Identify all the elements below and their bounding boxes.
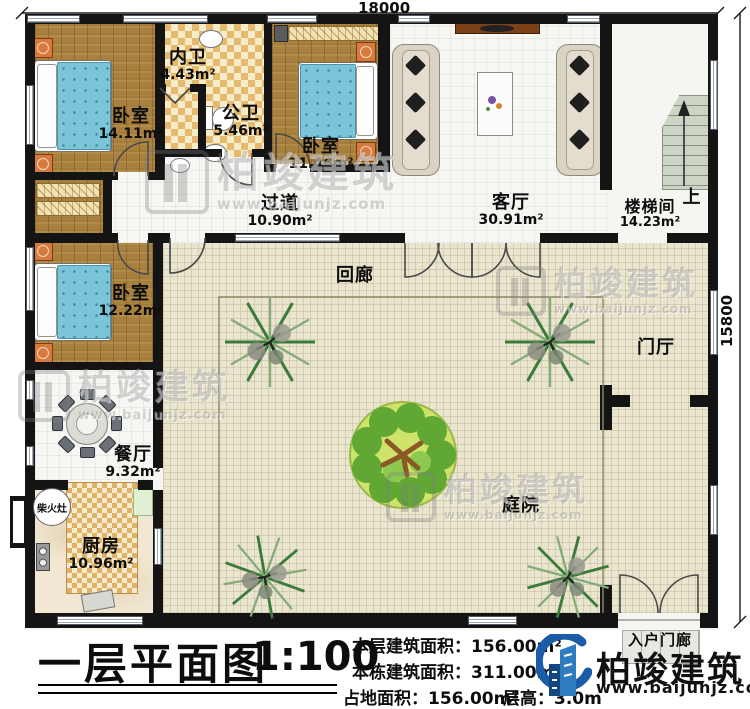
wall	[25, 362, 158, 370]
nightstand	[33, 154, 53, 174]
window	[567, 15, 600, 23]
room-area: 10.96m²	[68, 557, 133, 573]
room-name: 柴火灶	[37, 500, 67, 515]
room-label-foyer: 门厅	[637, 338, 675, 358]
wall	[667, 233, 718, 243]
tv-icon	[480, 25, 514, 32]
room-label-bedroom-c: 卧室 12.22m²	[98, 284, 163, 320]
nightstand	[356, 42, 376, 62]
window	[710, 290, 718, 355]
wall	[264, 164, 276, 172]
room-area: 12.22m²	[98, 304, 163, 320]
window	[710, 485, 718, 535]
wall	[157, 84, 166, 92]
wall	[190, 84, 206, 92]
room-label-kitchen: 厨房 10.96m²	[68, 537, 133, 573]
room-label-inner-bath: 内卫 4.43m²	[160, 48, 215, 84]
window	[26, 247, 34, 311]
dining-chair	[52, 416, 63, 431]
stairs-up-label: 上	[683, 188, 702, 208]
dining-chair	[111, 416, 122, 431]
wall	[540, 233, 618, 243]
sheet-title: 一层平面图	[38, 630, 268, 692]
room-name: 卧室	[98, 107, 163, 127]
nightstand	[33, 38, 53, 58]
floor-plan-sheet: 卧室 14.11m² 内卫 4.43m² 公卫 5.46m² 卧室 11.46m…	[0, 0, 750, 709]
window	[57, 616, 143, 625]
room-label-public-bath: 公卫 5.46m²	[213, 104, 268, 140]
stove-niche	[13, 501, 24, 543]
room-name: 过道	[247, 194, 312, 214]
room-area: 10.90m²	[247, 214, 312, 230]
wall	[600, 585, 612, 613]
room-name: 内卫	[160, 48, 215, 68]
wall	[198, 92, 206, 157]
bed-pillow	[37, 64, 57, 148]
room-name: 公卫	[213, 104, 268, 124]
dining-chair	[80, 447, 95, 458]
wardrobe	[36, 183, 100, 198]
room-area: 14.23m²	[620, 216, 680, 231]
room-label-stair-hall: 楼梯间 14.23m²	[620, 198, 680, 230]
wardrobe	[288, 26, 380, 41]
room-label-corridor: 过道 10.90m²	[247, 194, 312, 230]
window	[123, 15, 208, 23]
room-label-dining-room: 餐厅 9.32m²	[105, 445, 160, 481]
wall	[690, 395, 708, 407]
stove-burners-icon	[36, 543, 50, 571]
room-name: 厨房	[68, 537, 133, 557]
brand-logo-icon	[536, 634, 592, 704]
brand-url: www.baijunjz.com	[596, 678, 750, 697]
wall	[25, 233, 118, 243]
room-area: 9.32m²	[105, 465, 160, 481]
window	[468, 616, 517, 625]
room-name: 上	[683, 188, 702, 208]
room-name: 卧室	[98, 284, 163, 304]
courtyard-cloister-floor	[163, 243, 708, 613]
kitchen-cabinet	[133, 488, 153, 516]
room-area: 5.46m²	[213, 124, 268, 140]
wall	[700, 613, 718, 628]
room-area: 11.46m²	[288, 157, 353, 173]
room-area: 30.91m²	[478, 213, 543, 229]
room-label-bedroom-b: 卧室 11.46m²	[288, 137, 353, 173]
dining-chair	[80, 389, 95, 400]
window	[267, 15, 317, 23]
wardrobe	[36, 201, 100, 216]
window	[26, 380, 34, 400]
bed-pillow	[356, 66, 374, 136]
stat-floor-area: 本层建筑面积：156.00m²	[352, 632, 562, 657]
room-name: 卧室	[288, 137, 353, 157]
window	[235, 234, 340, 242]
room-label-courtyard: 庭院	[502, 496, 540, 516]
pedestal-sink	[170, 158, 190, 173]
nightstand	[356, 142, 376, 162]
room-name: 回廊	[336, 266, 374, 286]
window	[27, 15, 80, 23]
nightstand	[33, 241, 53, 261]
room-area: 14.11m²	[98, 127, 163, 143]
wall	[612, 395, 630, 407]
room-label-bedroom-a: 卧室 14.11m²	[98, 107, 163, 143]
wall	[138, 480, 153, 490]
nightstand	[33, 343, 53, 363]
title-underline	[38, 684, 337, 694]
wall	[378, 24, 390, 172]
wall	[264, 24, 272, 172]
coffee-table	[477, 72, 513, 136]
dining-table-center	[76, 413, 98, 435]
window	[26, 85, 34, 145]
window	[26, 446, 34, 466]
stat-land-area: 占地面积：156.00m²	[343, 684, 519, 709]
kitchen-door	[154, 528, 162, 565]
wood-stove-label: 柴火灶	[33, 488, 71, 526]
wall	[252, 149, 264, 157]
table-flowers-icon	[488, 96, 496, 104]
room-label-living-room: 客厅 30.91m²	[478, 193, 543, 229]
dimension-top-value: 18000	[358, 0, 410, 17]
window	[710, 60, 718, 130]
room-name: 门厅	[637, 338, 675, 358]
dimension-right-value: 15800	[718, 291, 736, 351]
room-name: 客厅	[478, 193, 543, 213]
stat-building-area: 本栋建筑面积：311.00m²	[352, 658, 562, 683]
wall	[157, 149, 222, 157]
wall	[600, 14, 612, 190]
room-area: 4.43m²	[160, 68, 215, 84]
bed-pillow	[37, 267, 57, 337]
wall	[148, 172, 165, 180]
room-name: 餐厅	[105, 445, 160, 465]
room-label-cloister: 回廊	[336, 266, 374, 286]
dresser	[274, 25, 288, 42]
wall	[600, 385, 612, 430]
bed-duvet	[300, 64, 356, 138]
room-name: 庭院	[502, 496, 540, 516]
sink	[199, 30, 223, 48]
room-name: 楼梯间	[620, 198, 680, 216]
